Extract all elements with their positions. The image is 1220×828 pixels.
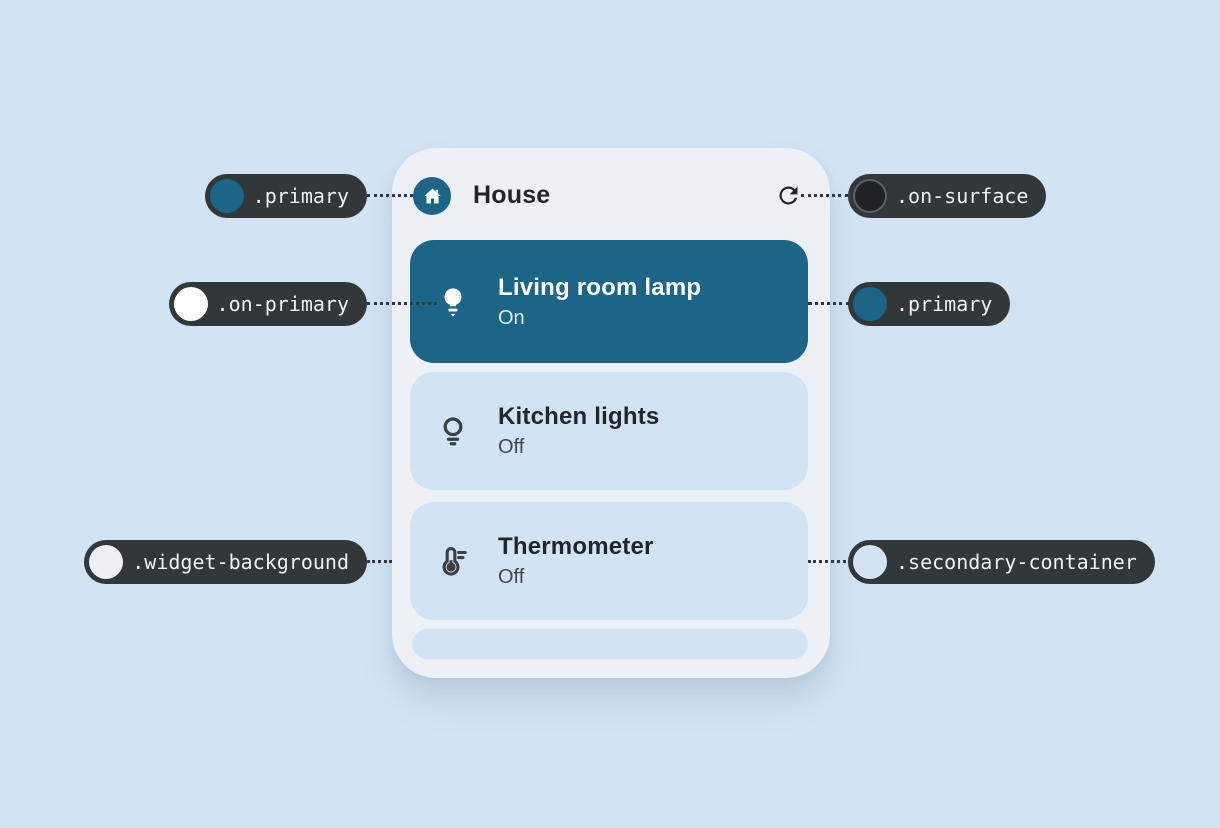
card-text: Living room lamp On bbox=[498, 274, 701, 330]
color-swatch bbox=[174, 287, 208, 321]
callout-label: .on-surface bbox=[896, 174, 1028, 218]
color-swatch bbox=[853, 545, 887, 579]
color-swatch bbox=[853, 287, 887, 321]
device-card-kitchen-lights[interactable]: Kitchen lights Off bbox=[410, 372, 808, 490]
device-name: Living room lamp bbox=[498, 274, 701, 302]
callout-primary-left: .primary bbox=[205, 174, 367, 218]
callout-on-primary: .on-primary bbox=[169, 282, 367, 326]
lightbulb-outline-icon bbox=[436, 414, 470, 448]
thermostat-icon bbox=[436, 544, 470, 578]
connector-primary-to-house-badge bbox=[367, 194, 413, 197]
connector-card-to-primary bbox=[808, 302, 850, 305]
connector-refresh-to-on-surface bbox=[801, 194, 848, 197]
refresh-button[interactable] bbox=[774, 181, 802, 209]
connector-on-primary-to-bulb bbox=[367, 302, 437, 305]
connector-widget-background-to-panel bbox=[367, 560, 392, 563]
refresh-icon bbox=[775, 182, 802, 209]
device-status: Off bbox=[498, 566, 654, 589]
house-icon bbox=[422, 186, 443, 207]
house-badge bbox=[413, 177, 451, 215]
color-swatch bbox=[210, 179, 244, 213]
card-text: Kitchen lights Off bbox=[498, 403, 659, 459]
color-swatch bbox=[853, 179, 887, 213]
callout-label: .widget-background bbox=[132, 540, 349, 584]
card-text: Thermometer Off bbox=[498, 533, 654, 589]
annotated-widget-diagram: House Living room lamp On bbox=[0, 0, 1220, 828]
device-card-living-room-lamp[interactable]: Living room lamp On bbox=[410, 240, 808, 363]
callout-primary-right: .primary bbox=[848, 282, 1010, 326]
callout-label: .secondary-container bbox=[896, 540, 1137, 584]
callout-secondary-container: .secondary-container bbox=[848, 540, 1155, 584]
peek-item bbox=[412, 629, 808, 659]
device-name: Thermometer bbox=[498, 533, 654, 561]
device-status: Off bbox=[498, 436, 659, 459]
callout-on-surface: .on-surface bbox=[848, 174, 1046, 218]
color-swatch bbox=[89, 545, 123, 579]
callout-label: .on-primary bbox=[217, 282, 349, 326]
callout-label: .primary bbox=[253, 174, 349, 218]
widget-title: House bbox=[473, 182, 550, 209]
device-card-thermometer[interactable]: Thermometer Off bbox=[410, 502, 808, 620]
callout-label: .primary bbox=[896, 282, 992, 326]
lightbulb-filled-icon bbox=[436, 285, 470, 319]
device-name: Kitchen lights bbox=[498, 403, 659, 431]
device-status: On bbox=[498, 307, 701, 330]
connector-card-to-secondary-container bbox=[808, 560, 852, 563]
callout-widget-background: .widget-background bbox=[84, 540, 367, 584]
